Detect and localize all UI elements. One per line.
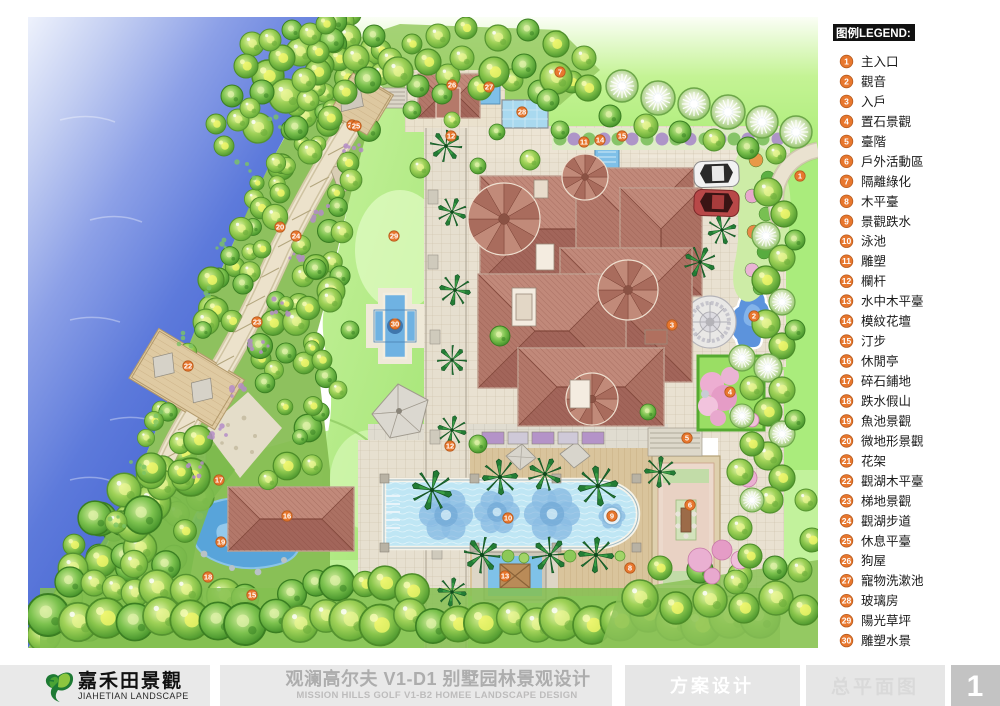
svg-text:汀步: 汀步 bbox=[861, 335, 886, 349]
svg-text:戶外活動區: 戶外活動區 bbox=[861, 155, 924, 169]
svg-text:29: 29 bbox=[842, 616, 852, 626]
svg-text:23: 23 bbox=[842, 496, 852, 506]
svg-text:19: 19 bbox=[842, 416, 852, 426]
svg-text:27: 27 bbox=[842, 576, 852, 586]
svg-text:2: 2 bbox=[752, 312, 756, 321]
svg-text:8: 8 bbox=[844, 196, 849, 206]
svg-text:17: 17 bbox=[215, 476, 223, 485]
svg-text:10: 10 bbox=[842, 236, 852, 246]
svg-text:跌水假山: 跌水假山 bbox=[861, 394, 911, 409]
svg-text:21: 21 bbox=[842, 456, 852, 466]
svg-text:觀音: 觀音 bbox=[861, 74, 886, 89]
svg-text:陽光草坪: 陽光草坪 bbox=[861, 614, 911, 628]
svg-text:22: 22 bbox=[842, 476, 852, 486]
svg-text:1: 1 bbox=[967, 670, 984, 703]
svg-text:5: 5 bbox=[844, 136, 849, 146]
svg-text:9: 9 bbox=[610, 512, 614, 521]
svg-text:27: 27 bbox=[485, 83, 493, 92]
svg-text:魚池景觀: 魚池景觀 bbox=[861, 415, 912, 429]
svg-text:14: 14 bbox=[842, 316, 852, 326]
svg-text:花架: 花架 bbox=[861, 453, 886, 468]
svg-text:28: 28 bbox=[842, 596, 852, 606]
svg-text:19: 19 bbox=[217, 538, 225, 547]
svg-text:休息平臺: 休息平臺 bbox=[861, 533, 911, 548]
svg-text:5: 5 bbox=[685, 434, 689, 443]
svg-text:25: 25 bbox=[842, 536, 852, 546]
svg-text:总平面图: 总平面图 bbox=[831, 675, 919, 698]
svg-text:寵物洗漱池: 寵物洗漱池 bbox=[861, 573, 924, 588]
svg-text:1: 1 bbox=[798, 172, 802, 181]
svg-text:梯地景觀: 梯地景觀 bbox=[861, 494, 912, 508]
svg-text:狗屋: 狗屋 bbox=[861, 554, 886, 568]
svg-text:26: 26 bbox=[448, 81, 456, 90]
svg-text:模紋花壇: 模紋花壇 bbox=[861, 314, 911, 329]
svg-text:15: 15 bbox=[618, 132, 626, 141]
svg-text:15: 15 bbox=[248, 591, 256, 600]
svg-text:休閒亭: 休閒亭 bbox=[861, 354, 899, 369]
svg-text:6: 6 bbox=[688, 501, 692, 510]
svg-text:14: 14 bbox=[596, 136, 605, 145]
svg-text:16: 16 bbox=[842, 356, 852, 366]
svg-text:17: 17 bbox=[842, 376, 852, 386]
svg-text:图例LEGEND:: 图例LEGEND: bbox=[836, 26, 911, 40]
svg-text:18: 18 bbox=[842, 396, 852, 406]
svg-text:泳池: 泳池 bbox=[861, 235, 887, 249]
svg-text:22: 22 bbox=[184, 362, 192, 371]
svg-text:11: 11 bbox=[580, 138, 588, 147]
svg-text:20: 20 bbox=[842, 436, 852, 446]
svg-text:28: 28 bbox=[518, 108, 526, 117]
svg-text:3: 3 bbox=[844, 96, 849, 106]
svg-text:30: 30 bbox=[391, 320, 399, 329]
svg-text:13: 13 bbox=[842, 296, 852, 306]
svg-text:碎石鋪地: 碎石鋪地 bbox=[861, 374, 912, 389]
svg-text:12: 12 bbox=[447, 132, 455, 141]
svg-text:觀湖木平臺: 觀湖木平臺 bbox=[861, 473, 924, 488]
svg-text:8: 8 bbox=[628, 564, 632, 573]
svg-text:主入口: 主入口 bbox=[861, 55, 899, 69]
svg-text:12: 12 bbox=[446, 442, 454, 451]
svg-text:23: 23 bbox=[253, 318, 261, 327]
svg-text:雕塑水景: 雕塑水景 bbox=[861, 633, 911, 648]
svg-text:13: 13 bbox=[501, 572, 509, 581]
svg-text:24: 24 bbox=[292, 232, 301, 241]
svg-text:JIAHETIAN LANDSCAPE: JIAHETIAN LANDSCAPE bbox=[78, 691, 189, 701]
svg-text:MISSION HILLS GOLF V1-B2 HOMEE: MISSION HILLS GOLF V1-B2 HOMEE LANDSCAPE… bbox=[296, 690, 577, 701]
svg-text:嘉禾田景觀: 嘉禾田景觀 bbox=[77, 670, 183, 692]
svg-text:20: 20 bbox=[276, 223, 284, 232]
svg-text:微地形景觀: 微地形景觀 bbox=[861, 434, 924, 448]
svg-text:7: 7 bbox=[844, 176, 849, 186]
svg-text:18: 18 bbox=[204, 573, 212, 582]
svg-text:26: 26 bbox=[842, 556, 852, 566]
svg-text:3: 3 bbox=[670, 321, 674, 330]
svg-text:玻璃房: 玻璃房 bbox=[861, 593, 899, 608]
svg-text:11: 11 bbox=[842, 256, 851, 266]
svg-text:观澜高尔夫 V1-D1 别墅园林景观设计: 观澜高尔夫 V1-D1 别墅园林景观设计 bbox=[285, 668, 590, 689]
svg-text:觀湖步道: 觀湖步道 bbox=[861, 513, 912, 528]
svg-text:25: 25 bbox=[352, 122, 360, 131]
svg-text:水中木平臺: 水中木平臺 bbox=[861, 294, 924, 309]
svg-text:景觀跌水: 景觀跌水 bbox=[861, 214, 912, 229]
svg-text:10: 10 bbox=[504, 514, 512, 523]
svg-text:1: 1 bbox=[844, 57, 849, 67]
svg-text:隔離綠化: 隔離綠化 bbox=[861, 175, 912, 189]
svg-text:木平臺: 木平臺 bbox=[861, 194, 899, 209]
svg-text:雕塑: 雕塑 bbox=[861, 254, 886, 269]
svg-text:7: 7 bbox=[558, 68, 562, 77]
svg-text:24: 24 bbox=[842, 516, 852, 526]
svg-text:欄杆: 欄杆 bbox=[861, 274, 887, 289]
svg-text:2: 2 bbox=[844, 77, 849, 87]
svg-text:15: 15 bbox=[842, 336, 852, 346]
svg-text:置石景觀: 置石景觀 bbox=[861, 115, 912, 129]
svg-text:入戶: 入戶 bbox=[861, 95, 886, 109]
svg-text:29: 29 bbox=[390, 232, 398, 241]
svg-text:4: 4 bbox=[844, 116, 849, 126]
svg-text:方案设计: 方案设计 bbox=[670, 675, 754, 696]
svg-text:12: 12 bbox=[842, 276, 852, 286]
svg-text:16: 16 bbox=[283, 512, 291, 521]
svg-text:臺階: 臺階 bbox=[861, 134, 887, 149]
svg-text:9: 9 bbox=[844, 216, 849, 226]
svg-text:30: 30 bbox=[842, 636, 852, 646]
svg-text:6: 6 bbox=[844, 156, 849, 166]
